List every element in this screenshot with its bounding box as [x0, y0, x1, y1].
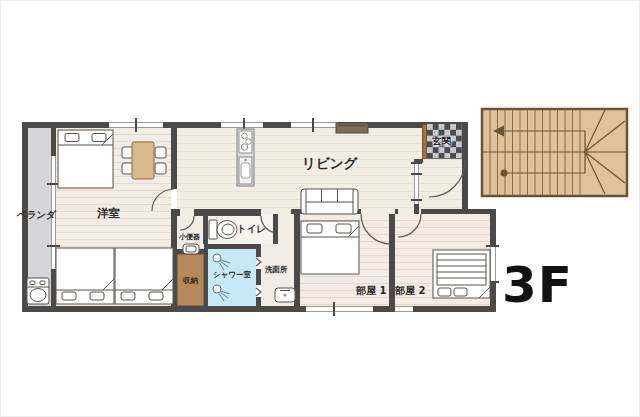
room1-label: 部屋 1 — [356, 286, 386, 296]
storage-label: 収納 — [183, 277, 198, 285]
double-bed-icon — [433, 250, 490, 298]
shower-head-icon — [213, 285, 230, 301]
toilet-label: トイレ — [237, 224, 266, 234]
door-arc-urinal — [180, 216, 194, 230]
double-bed-icon — [58, 130, 113, 188]
kitchen-sink-icon — [239, 157, 252, 184]
veranda-label: ベランダ — [17, 210, 57, 220]
stairs-start-dot — [501, 170, 508, 177]
sofa-icon — [301, 189, 358, 214]
washing-machine-icon — [27, 278, 49, 304]
door-arc-room1 — [361, 214, 391, 244]
shower-room-label: シャワー室 — [213, 271, 251, 279]
shower-head-icon — [213, 254, 230, 270]
washroom-label: 洗面所 — [265, 266, 288, 274]
door-arc-room2 — [398, 214, 421, 237]
western-room-label: 洋室 — [97, 208, 120, 220]
living-label: リビング — [302, 157, 357, 171]
shower-door-mark — [256, 288, 261, 296]
washbasin-icon — [275, 288, 295, 302]
double-bed-icon — [301, 221, 359, 274]
tv-board-icon — [336, 123, 368, 133]
room2-label: 部屋 2 — [395, 286, 425, 296]
single-bed-icon — [115, 248, 173, 304]
floorplan-canvas: ベランダ 洋室 リビング 玄関 小便器 トイレ 収納 シャワー室 洗面所 部屋 … — [0, 0, 640, 417]
staircase-icon — [482, 109, 627, 196]
dining-table-icon — [122, 142, 166, 179]
door-arc-entrance — [429, 161, 465, 197]
urinal-icon — [183, 244, 199, 254]
shower-door-mark — [256, 258, 261, 266]
urinal-label: 小便器 — [179, 234, 200, 241]
single-bed-icon — [56, 248, 114, 304]
door-arc-western-room — [152, 189, 174, 211]
entrance-label: 玄関 — [432, 136, 451, 146]
floor-number: 3F — [502, 260, 573, 310]
toilet-icon — [209, 220, 237, 239]
